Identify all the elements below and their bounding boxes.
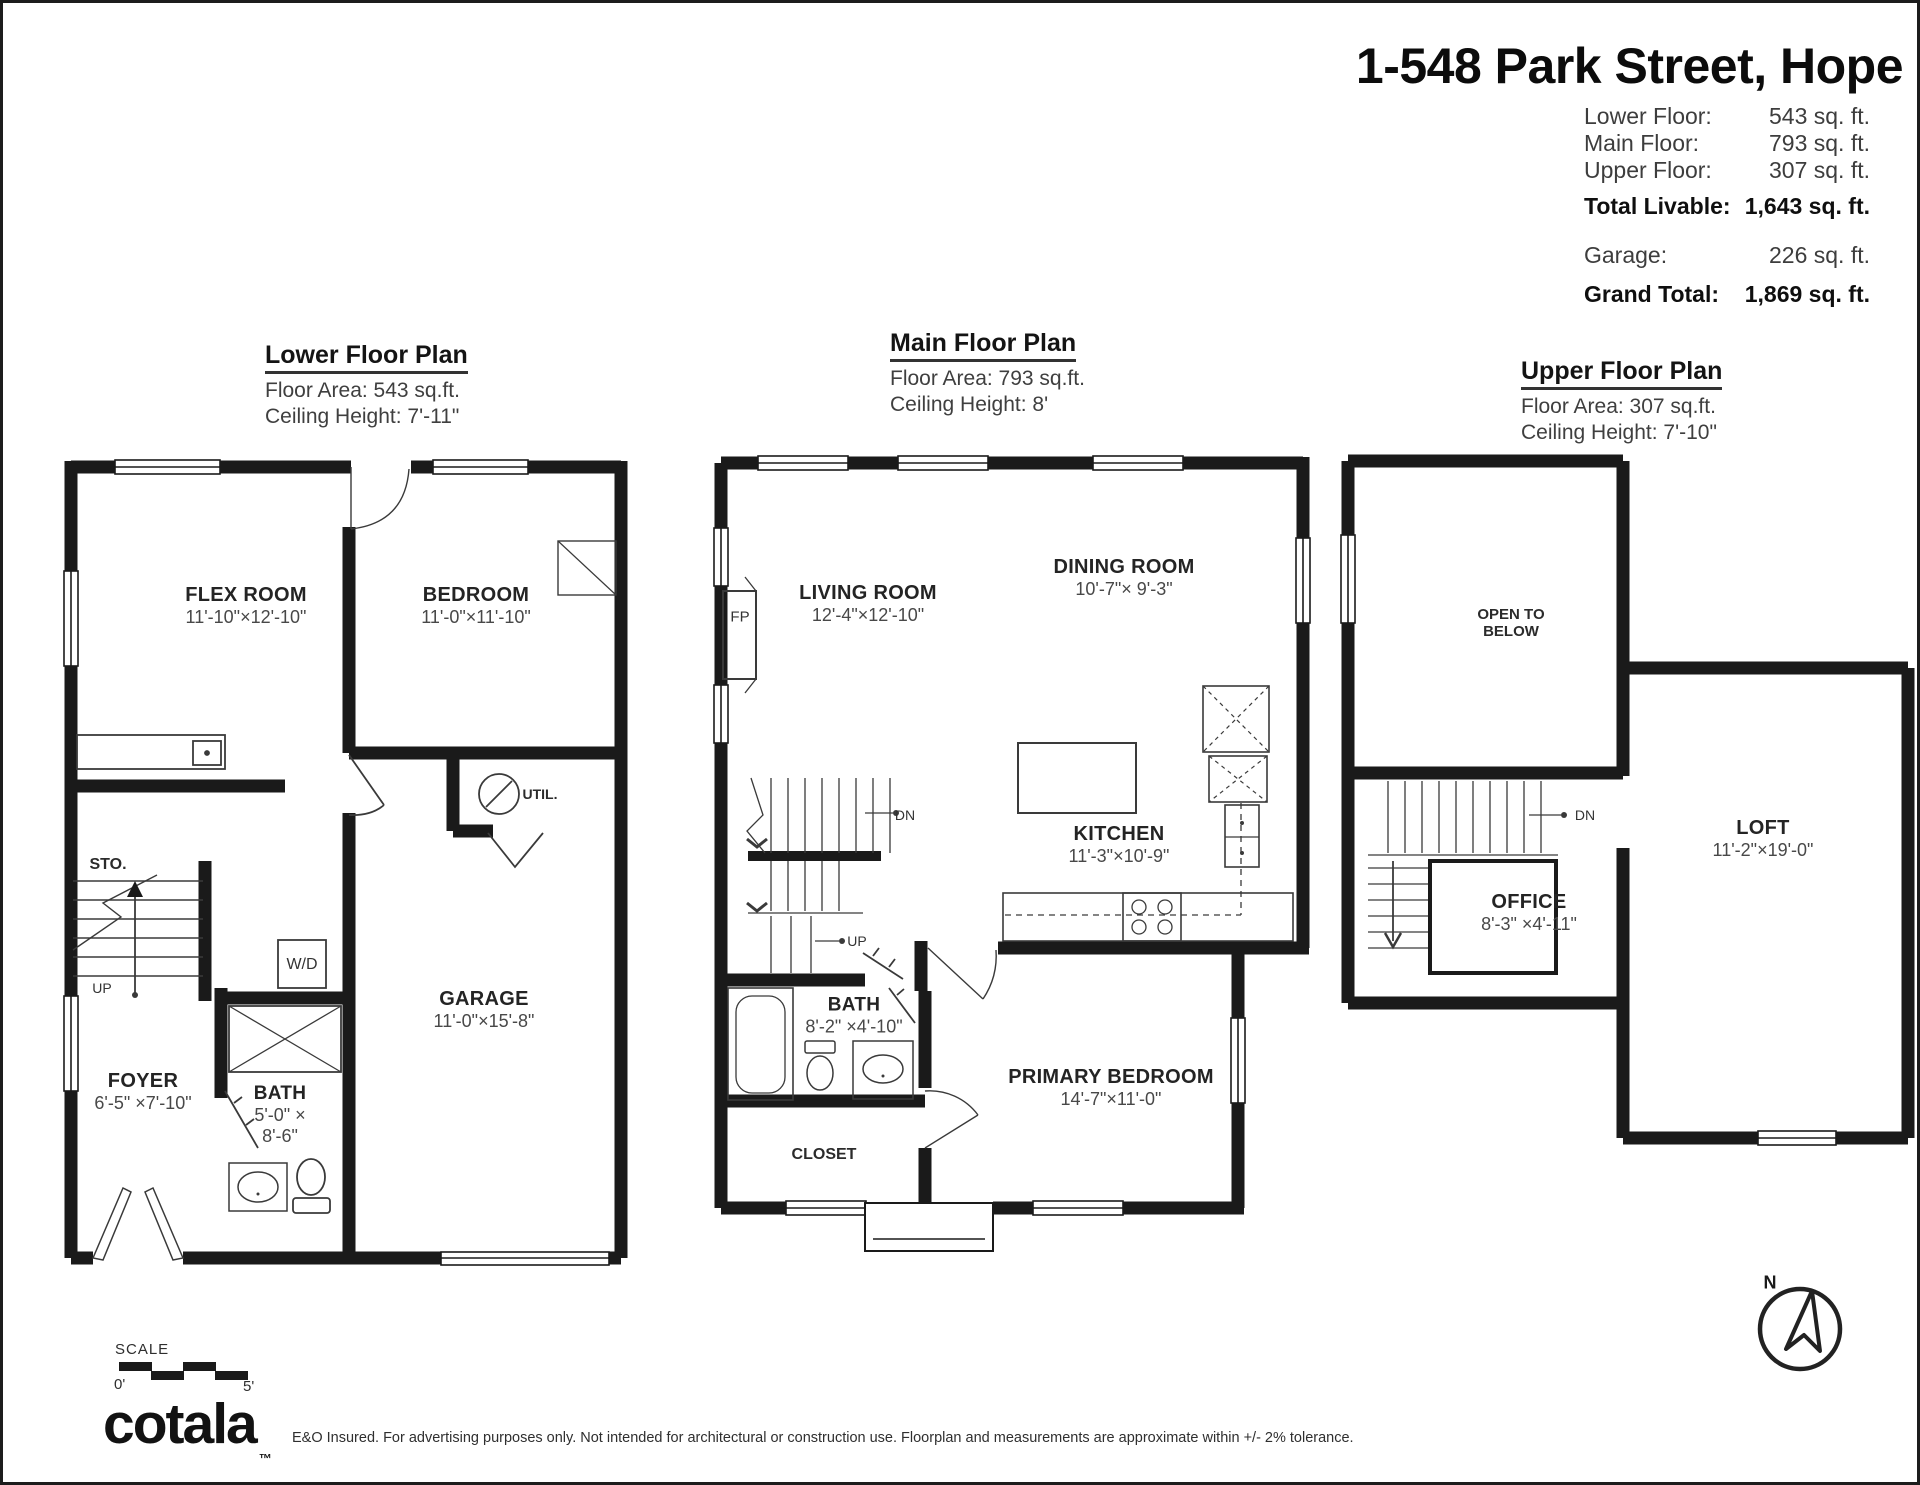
toilet [297,1159,325,1195]
entry-door-leaf [145,1188,183,1260]
entry-door-leaf [93,1188,131,1260]
room-label-lower-bath: BATH 5'-0" × 8'-6" [254,1083,307,1147]
kitchen-counter [1003,893,1293,941]
disclaimer-text: E&O Insured. For advertising purposes on… [292,1430,1592,1446]
lower-plan-floor-area: Floor Area: 543 sq.ft. [265,378,468,404]
stove [1123,893,1181,941]
stairs-treads-upper [1388,781,1541,853]
stat-garage: Garage: 226 sq. ft. [1584,242,1870,269]
upper-plan-floor-area: Floor Area: 307 sq.ft. [1521,394,1722,420]
corner-pantry [1203,686,1269,752]
area-summary: Lower Floor: 543 sq. ft. Main Floor: 793… [1584,103,1870,308]
stat-upper-floor: Upper Floor: 307 sq. ft. [1584,157,1870,184]
flex-bench [77,735,225,769]
room-label-closet: CLOSET [792,1146,857,1164]
label-utility: UTIL. [523,786,558,802]
stat-grand-total: Grand Total: 1,869 sq. ft. [1584,281,1870,308]
stairs-treads-upper [771,778,890,853]
stat-total-livable: Total Livable: 1,643 sq. ft. [1584,193,1870,220]
room-label-office: OFFICE 8'-3" ×4'-11" [1481,891,1577,935]
lower-floor-drawing [53,453,643,1268]
label-storage: STO. [89,856,126,874]
stat-label: Grand Total: [1584,281,1719,308]
main-details [723,577,1293,1148]
label-down-upper: DN [1575,807,1595,823]
stat-value: 1,643 sq. ft. [1745,193,1870,220]
label-open-to-below: OPEN TO BELOW [1477,606,1544,640]
room-label-primary-bedroom: PRIMARY BEDROOM 14'-7"×11'-0" [1008,1066,1214,1110]
stat-label: Garage: [1584,242,1667,269]
label-washer-dryer: W/D [286,956,317,974]
room-label-dining: DINING ROOM 10'-7"× 9'-3" [1053,556,1194,600]
upper-floor-drawing [1333,443,1920,1163]
main-plan-floor-area: Floor Area: 793 sq.ft. [890,366,1085,392]
stat-value: 226 sq. ft. [1769,242,1870,269]
upper-plan-header: Upper Floor Plan Floor Area: 307 sq.ft. … [1521,357,1722,446]
stat-value: 1,869 sq. ft. [1745,281,1870,308]
scale-bar [119,1359,249,1385]
main-plan-title: Main Floor Plan [890,329,1076,362]
bath-sink [853,1041,913,1099]
kitchen-island [1018,743,1136,813]
stat-value: 307 sq. ft. [1769,157,1870,184]
stat-main-floor: Main Floor: 793 sq. ft. [1584,130,1870,157]
page-title: 1-548 Park Street, Hope [1356,37,1903,95]
utility-door [488,833,543,867]
room-label-flex: FLEX ROOM 11'-10"×12'-10" [185,584,307,628]
stat-label: Total Livable: [1584,193,1731,220]
room-label-loft: LOFT 11'-2"×19'-0" [1713,817,1814,861]
label-fireplace: FP [730,609,749,626]
toilet [805,1041,835,1053]
upper-walls [1348,461,1908,1138]
room-label-garage: GARAGE 11'-0"×15'-8" [434,988,535,1032]
lower-windows [64,460,609,1265]
room-label-main-bath: BATH 8'-2" ×4'-10" [805,995,902,1038]
stat-label: Main Floor: [1584,130,1699,157]
fireplace [723,591,756,679]
compass-north-label: N [1764,1273,1777,1294]
stat-lower-floor: Lower Floor: 543 sq. ft. [1584,103,1870,130]
lower-plan-title: Lower Floor Plan [265,341,468,374]
scale-label: SCALE [115,1341,169,1358]
upper-plan-title: Upper Floor Plan [1521,357,1722,390]
lower-plan-header: Lower Floor Plan Floor Area: 543 sq.ft. … [265,341,468,430]
stat-value: 543 sq. ft. [1769,103,1870,130]
stair-arrows [747,839,767,911]
room-label-living: LIVING ROOM 12'-4"×12'-10" [799,582,937,626]
room-label-foyer: FOYER 6'-5" ×7'-10" [94,1070,191,1114]
main-plan-header: Main Floor Plan Floor Area: 793 sq.ft. C… [890,329,1085,418]
room-label-bedroom: BEDROOM 11'-0"×11'-10" [421,584,531,628]
cotala-logo: cotala™ [103,1391,269,1457]
fridge [1225,805,1259,867]
closet-door-swing [925,1091,978,1148]
trademark-symbol: ™ [259,1451,272,1466]
label-up: UP [92,980,111,996]
stat-label: Upper Floor: [1584,157,1712,184]
stat-value: 793 sq. ft. [1769,130,1870,157]
lower-walls [71,461,621,1258]
label-up-main: UP [847,933,866,949]
stat-label: Lower Floor: [1584,103,1712,130]
bedroom-door-swing [351,467,409,529]
bedroom-door-swing [928,948,996,999]
main-plan-ceiling-height: Ceiling Height: 8' [890,392,1085,418]
bay-window [865,1203,993,1251]
label-down-main: DN [895,807,915,823]
floorplan-sheet: 1-548 Park Street, Hope Lower Floor: 543… [0,0,1920,1485]
stairs-break-line [73,875,157,950]
lower-plan-ceiling-height: Ceiling Height: 7'-11" [265,404,468,430]
garage-door-swing [349,755,384,815]
stairs-treads-lower [748,861,863,973]
room-label-kitchen: KITCHEN 11'-3"×10'-9" [1069,823,1170,867]
